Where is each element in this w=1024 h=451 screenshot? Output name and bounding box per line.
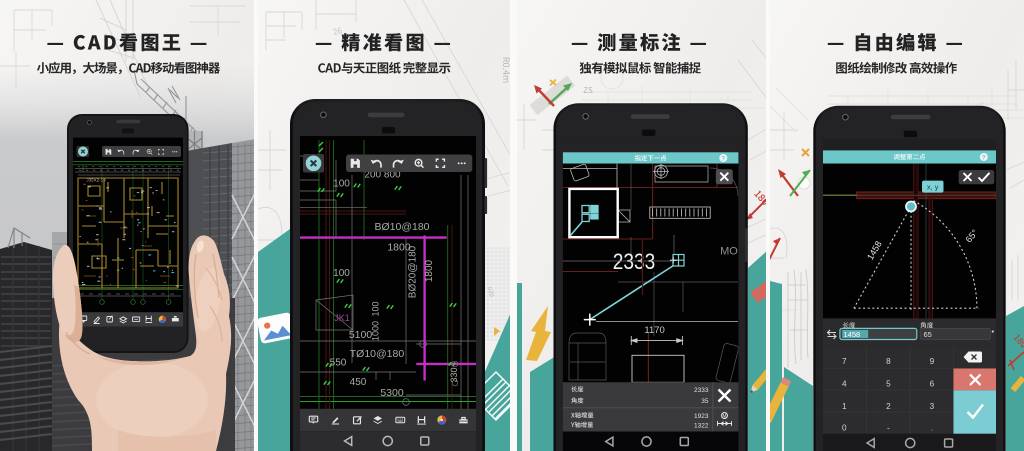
svg-text:-: - xyxy=(887,424,890,433)
svg-text:9: 9 xyxy=(930,357,935,366)
svg-text:2: 2 xyxy=(886,402,891,411)
svg-text:1322: 1322 xyxy=(694,422,709,429)
svg-text:550: 550 xyxy=(330,358,347,369)
svg-text:1170: 1170 xyxy=(644,325,664,336)
svg-text:100: 100 xyxy=(333,268,350,279)
svg-text:330: 330 xyxy=(449,367,459,382)
svg-text:2333: 2333 xyxy=(694,387,709,394)
svg-text:450: 450 xyxy=(350,377,367,388)
svg-text:1000: 1000 xyxy=(371,321,381,341)
svg-text:4: 4 xyxy=(842,380,847,389)
svg-text:.: . xyxy=(931,424,933,433)
svg-text:1458: 1458 xyxy=(844,330,861,339)
svg-text:5: 5 xyxy=(886,380,891,389)
svg-text:35: 35 xyxy=(701,398,709,405)
svg-text:JK1: JK1 xyxy=(334,313,350,323)
svg-text:TØ10@180: TØ10@180 xyxy=(350,348,405,360)
svg-text:?: ? xyxy=(982,155,986,162)
svg-text:7: 7 xyxy=(842,357,847,366)
svg-text:2333: 2333 xyxy=(613,249,656,274)
svg-text:65: 65 xyxy=(924,330,932,339)
svg-text:1923: 1923 xyxy=(694,413,709,420)
svg-text:0: 0 xyxy=(842,424,847,433)
svg-text:8: 8 xyxy=(886,357,891,366)
svg-text:M: M xyxy=(722,414,726,420)
svg-text:1800: 1800 xyxy=(424,259,435,282)
svg-text:100: 100 xyxy=(371,301,381,316)
svg-text:BØ10@180: BØ10@180 xyxy=(374,221,429,233)
svg-text:6: 6 xyxy=(930,380,935,389)
svg-text:x, y: x, y xyxy=(927,182,939,191)
svg-text:MO: MO xyxy=(720,246,738,258)
svg-text:3: 3 xyxy=(930,402,935,411)
svg-text:5300: 5300 xyxy=(380,387,404,399)
svg-text:BØ20@180: BØ20@180 xyxy=(408,245,419,298)
svg-text:100: 100 xyxy=(333,179,350,190)
svg-text:1: 1 xyxy=(842,402,847,411)
svg-text:5100: 5100 xyxy=(349,329,373,341)
svg-text:?: ? xyxy=(721,156,725,163)
